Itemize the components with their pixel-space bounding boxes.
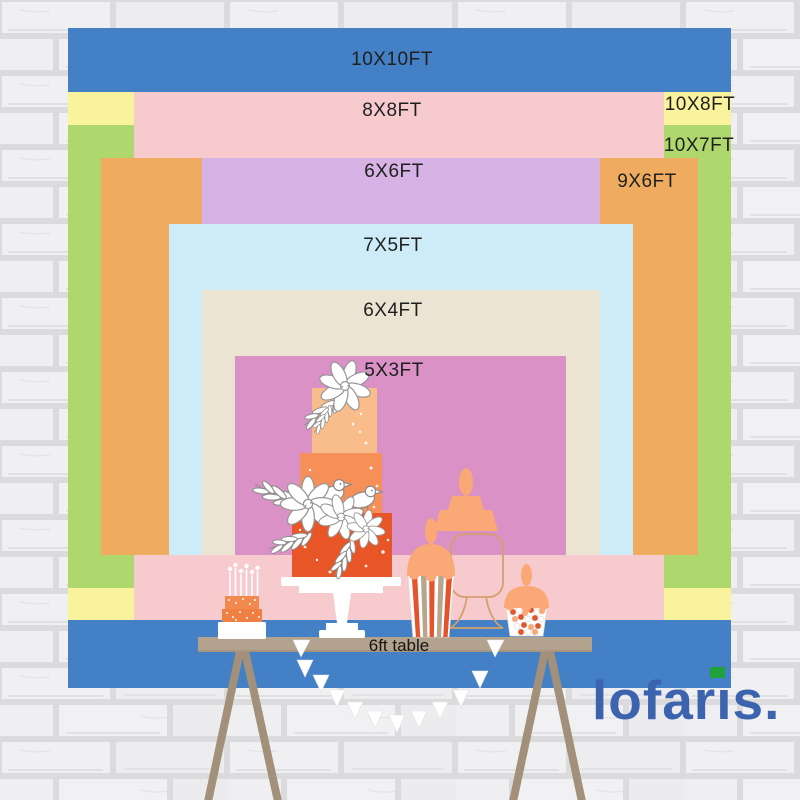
size-label-10x7ft: 10X7FT xyxy=(664,135,735,157)
size-label-8x8ft: 8X8FT xyxy=(362,100,422,122)
backdrop-size-chart: 10X10FT 10X8FT 10X7FT 8X8FT 9X6FT 6X6FT … xyxy=(0,0,800,800)
size-label-10x8ft: 10X8FT xyxy=(665,94,736,116)
size-label-6x6ft: 6X6FT xyxy=(364,161,424,183)
table-size-label: 6ft table xyxy=(369,636,430,656)
lofaris-logo: lofarıs. xyxy=(592,673,780,731)
logo-wordmark-end: ıs xyxy=(716,669,764,731)
backdrop-layer-5x3 xyxy=(235,356,566,555)
logo-green-mark-icon xyxy=(710,667,725,678)
size-label-5x3ft: 5X3FT xyxy=(364,360,424,382)
size-label-9x6ft: 9X6FT xyxy=(617,171,677,193)
logo-wordmark-start: lofar xyxy=(592,669,716,731)
size-label-7x5ft: 7X5FT xyxy=(363,235,423,257)
size-label-6x4ft: 6X4FT xyxy=(363,300,423,322)
logo-period: . xyxy=(764,669,780,731)
size-label-10x10ft: 10X10FT xyxy=(351,49,433,71)
